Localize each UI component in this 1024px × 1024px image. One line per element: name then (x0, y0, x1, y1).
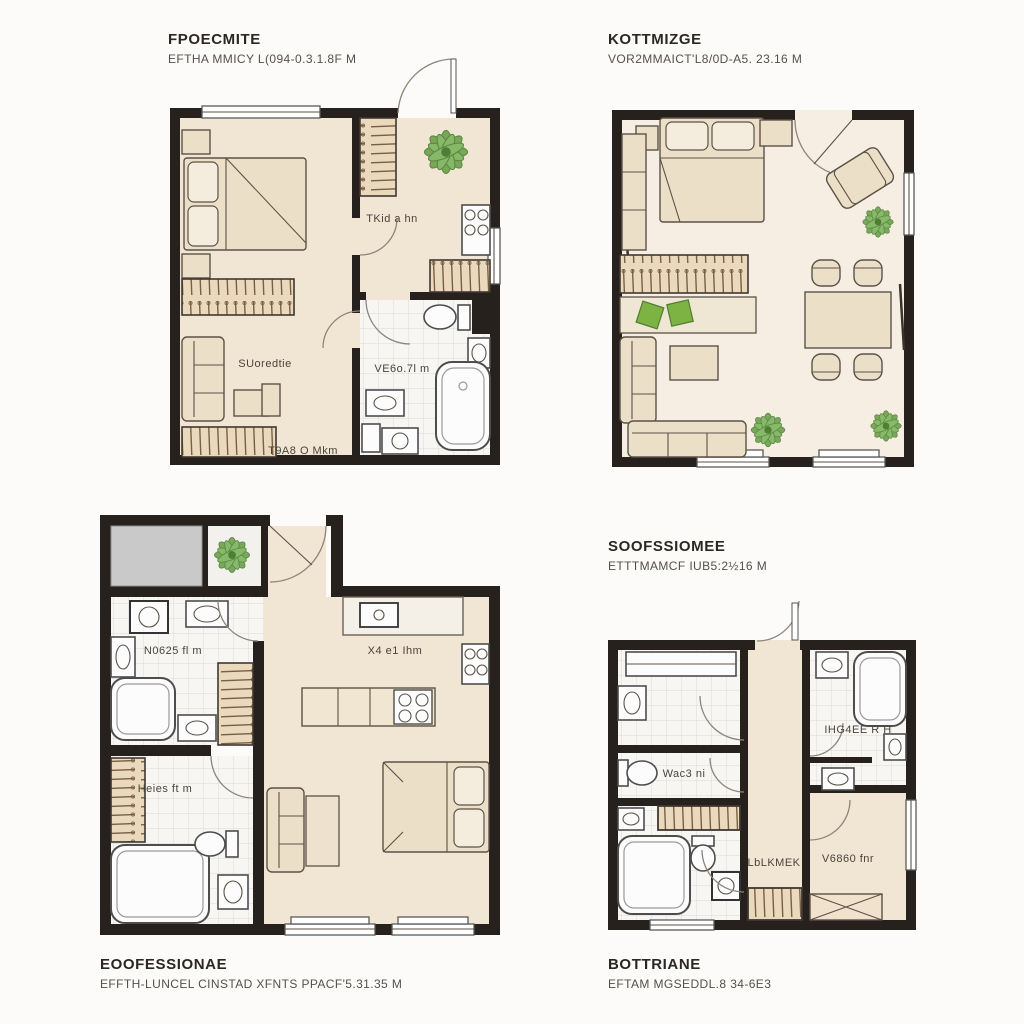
plan3-caption-subtitle: EFFTH-LUNCEL CINSTAD XFNTS PPACF'5.31.35… (100, 977, 402, 993)
wardrobe (360, 118, 396, 196)
plant-icon (863, 207, 893, 237)
corridor (748, 650, 802, 920)
room-label-bath: IHG4EE R H (824, 724, 891, 736)
wardrobe (182, 427, 276, 457)
plan2-header: KOTTMIZGE VOR2MMAICT'L8/0D-A5. 23.16 M (608, 31, 802, 67)
sofa (628, 421, 746, 457)
coffee-table (670, 346, 718, 380)
plan4-caption: BOTTRIANE EFTAM MGSEDDL.8 34-6E3 (608, 955, 771, 992)
room-label-bath-bottom: Heies ft m (138, 783, 193, 795)
bathtub (111, 678, 175, 740)
floorplan-bottom-left: N0625 fl m Heies ft m X4 e1 Ihm (98, 513, 502, 937)
floorplan-sheet: FPOECMITE EFTHA MMICY L(094-0.3.1.8F M K… (0, 0, 1024, 1024)
side-table (262, 384, 280, 416)
floorplan-bottom-right: IHG4EE R H Wac3 ni LbLKMEK V6860 fnr (606, 600, 918, 934)
plan4-header: SOOFSSIOMEE ETTTMAMCF IUB5:2½16 M (608, 538, 767, 574)
window (904, 173, 914, 235)
toilet (691, 836, 715, 871)
plan3-caption: EOOFESSIONAE EFFTH-LUNCEL CINSTAD XFNTS … (100, 955, 402, 992)
door-gap (366, 292, 410, 300)
kitchen-counter (343, 597, 463, 635)
dining-table (805, 292, 891, 348)
entry-door (398, 59, 456, 118)
door-gap (253, 597, 264, 641)
wardrobe (111, 758, 145, 842)
storage-x (810, 894, 882, 920)
bed (184, 158, 306, 250)
room-label-closet: LbLKMEK (747, 857, 800, 869)
room-label-living: SUoredtie (238, 358, 291, 370)
sink (178, 715, 216, 741)
side-table (760, 120, 792, 146)
kitchen-island (302, 688, 435, 726)
kitchen-counter (430, 260, 490, 292)
window (650, 920, 714, 930)
nightstand (182, 254, 210, 278)
balcony (111, 526, 202, 586)
cabinet (362, 424, 380, 452)
wardrobe (182, 279, 294, 315)
bed (660, 118, 764, 222)
wardrobe (620, 255, 748, 293)
plan4-caption-subtitle: EFTAM MGSEDDL.8 34-6E3 (608, 977, 771, 993)
window (392, 917, 474, 935)
room-label-room: V6860 fnr (822, 853, 874, 865)
floorplan-top-left: TKid a hn SUoredtie VE6o.7l m T9A8 O Mkm (168, 58, 502, 472)
sofa (267, 788, 304, 872)
nightstand (182, 130, 210, 154)
door-gap (352, 313, 360, 348)
room-label-bath-top: N0625 fl m (144, 645, 202, 657)
counter (626, 652, 736, 676)
coffee-table (306, 796, 339, 866)
plant-icon (751, 413, 785, 447)
wardrobe (748, 888, 802, 920)
bathtub (111, 845, 209, 923)
bathtub (618, 836, 690, 914)
sink (111, 637, 135, 677)
plan4-title: SOOFSSIOMEE (608, 538, 767, 557)
sofa (620, 337, 656, 423)
sink (186, 601, 228, 627)
toilet (618, 760, 657, 786)
wardrobe (218, 663, 253, 745)
plan2-subtitle: VOR2MMAICT'L8/0D-A5. 23.16 M (608, 52, 802, 67)
plan1-title: FPOECMITE (168, 31, 356, 50)
sink (218, 875, 248, 909)
floorplan-top-right (610, 106, 916, 470)
washing-machine (712, 872, 740, 900)
sink (366, 390, 404, 416)
plan2-title: KOTTMIZGE (608, 31, 802, 50)
window (813, 450, 885, 467)
window (202, 106, 320, 118)
bathtub (854, 652, 906, 726)
sink (618, 686, 646, 720)
green-cushion (667, 300, 693, 326)
sink (884, 734, 906, 760)
room-label-wardrobe: T9A8 O Mkm (268, 445, 338, 457)
room-label-wc: Wac3 ni (663, 768, 706, 780)
washing-machine (382, 428, 418, 454)
plan4-caption-title: BOTTRIANE (608, 955, 771, 975)
entry-corridor (268, 526, 326, 597)
plan3-caption-title: EOOFESSIONAE (100, 955, 402, 975)
window (906, 800, 916, 870)
chair (854, 354, 882, 380)
plant-icon (871, 411, 901, 441)
plan4-subtitle: ETTTMAMCF IUB5:2½16 M (608, 559, 767, 574)
room-label-bathroom: VE6o.7l m (374, 363, 429, 375)
window (285, 917, 375, 935)
chair (812, 260, 840, 286)
sideboard (620, 297, 756, 333)
cabinet (622, 134, 646, 250)
room-label-kitchen: X4 e1 Ihm (368, 645, 423, 657)
entry-door (755, 601, 800, 650)
sink (822, 768, 854, 790)
closet (658, 806, 740, 830)
bed (383, 762, 489, 852)
toilet (195, 831, 238, 857)
plant-icon (424, 130, 467, 173)
door-gap (352, 218, 360, 255)
plant-icon (214, 537, 249, 572)
chair (812, 354, 840, 380)
stove (462, 644, 489, 684)
sink (816, 652, 848, 678)
sink (618, 808, 644, 830)
room-label-kitchen: TKid a hn (366, 213, 418, 225)
chair (854, 260, 882, 286)
bathtub (436, 362, 490, 450)
sofa (182, 337, 224, 421)
stove (462, 205, 490, 255)
washing-machine (130, 601, 168, 633)
